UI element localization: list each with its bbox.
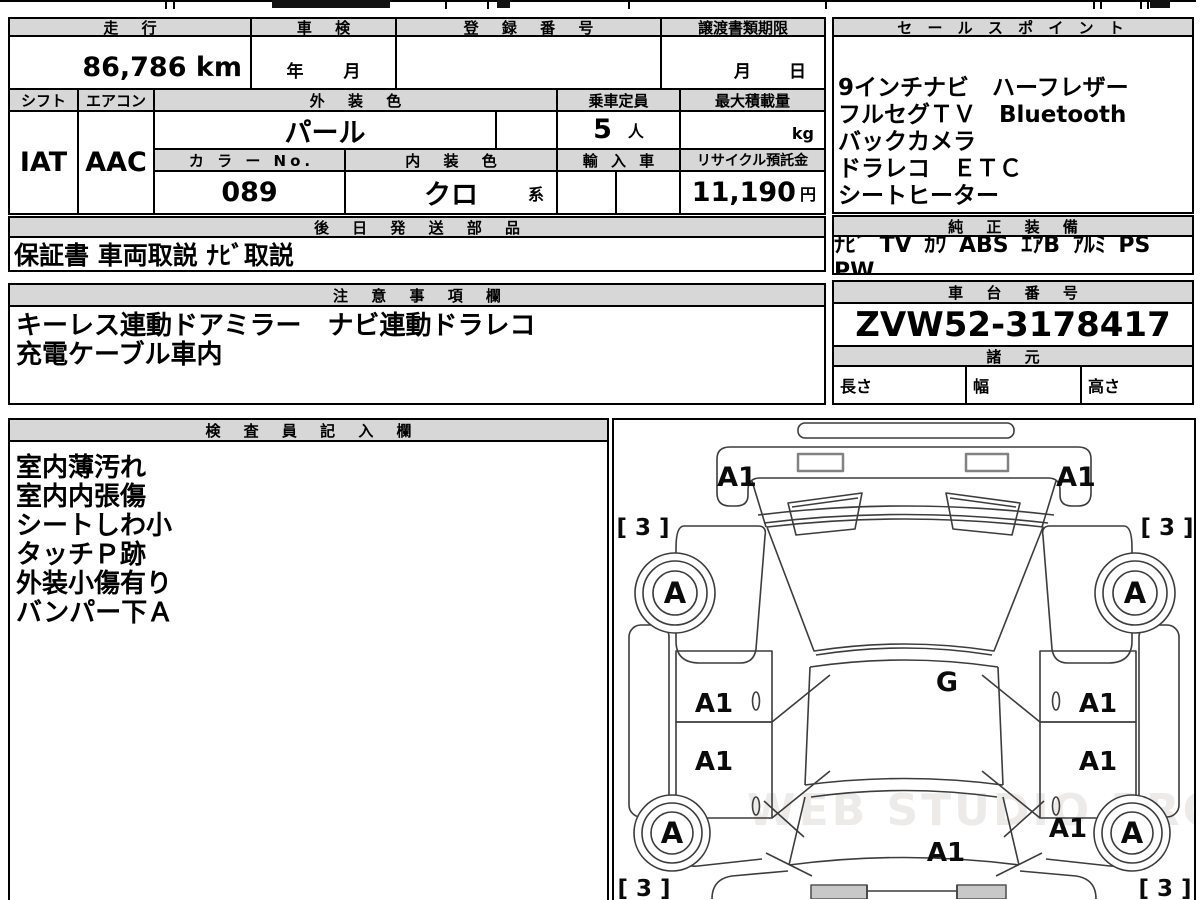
inspector-line: 外装小傷有り <box>16 570 173 599</box>
notes-header: 注 意 事 項 欄 <box>8 283 826 307</box>
chassis-number: ZVW52-3178417 <box>832 302 1194 347</box>
wheel-mark-front-right: A <box>1124 576 1147 610</box>
sill-left <box>629 625 669 817</box>
shift-value: IAT <box>8 110 79 215</box>
equipment-header: 純 正 装 備 <box>832 215 1194 237</box>
sales-point-line: シートヒーター <box>838 183 1129 210</box>
shaken-value: 年 月 <box>250 35 397 90</box>
wheel-mark-front-left: A <box>664 576 687 610</box>
exterior-color-sub <box>495 110 558 150</box>
color-no-value: 089 <box>153 170 346 215</box>
damage-mark-rear-door-right: A1 <box>1079 747 1117 777</box>
auction-sheet: 走 行 車 検 登 録 番 号 譲渡書類期限 86,786 km 年 月 月 日… <box>0 0 1200 900</box>
mileage-value: 86,786 km <box>8 35 252 90</box>
damage-mark-front-door-left: A1 <box>695 689 733 719</box>
damage-mark-rear-door-left: A1 <box>695 747 733 777</box>
damage-mark-front-door-right: A1 <box>1079 689 1117 719</box>
inspector-line: シートしわ小 <box>16 512 173 541</box>
front-fog-right <box>966 454 1008 471</box>
equipment-value: ﾅﾋﾞ TV ｶﾜ ABS ｴｱB ｱﾙﾐ PS PW <box>832 235 1194 275</box>
tire-tread-front-left: [ 3 ] <box>616 515 669 541</box>
inspector-line: タッチＰ跡 <box>16 541 173 570</box>
registration-header: 登 録 番 号 <box>395 17 662 37</box>
windshield-arc <box>816 648 992 655</box>
tire-tread-front-right: [ 3 ] <box>1140 515 1193 541</box>
damage-mark-bumper-right: A1 <box>1056 462 1096 493</box>
door-handle <box>753 692 760 710</box>
door-handle <box>1053 692 1060 710</box>
inspector-line: バンパー下Ａ <box>16 599 173 628</box>
cutoff-text-fragment <box>272 0 390 8</box>
length-cell: 長さ <box>832 365 967 405</box>
glass-mark: G <box>936 667 958 698</box>
damage-diagram-panel: WEB STUDIO PRO <box>612 418 1196 900</box>
notes-content: キーレス連動ドアミラー ナビ連動ドラレコ 充電ケーブル車内 <box>8 305 826 405</box>
transfer-value: 月 日 <box>660 35 826 90</box>
car-diagram: WEB STUDIO PRO <box>614 421 1194 899</box>
aircon-value: AAC <box>77 110 155 215</box>
capacity-header: 乗車定員 <box>556 88 681 112</box>
import-value-b <box>615 170 681 215</box>
notes-line: キーレス連動ドアミラー ナビ連動ドラレコ <box>16 312 535 341</box>
registration-value <box>395 35 662 90</box>
damage-mark-rear-panel: A1 <box>927 838 965 868</box>
wheel-mark-rear-left: A <box>661 816 684 850</box>
tire-tread-rear-left: [ 3 ] <box>617 876 670 899</box>
shaken-month-unit: 月 <box>344 57 361 82</box>
capacity-value: 5 人 <box>556 110 681 150</box>
rear-bumper <box>712 871 1096 899</box>
inspector-content: 室内薄汚れ 室内内張傷 シートしわ小 タッチＰ跡 外装小傷有り バンパー下Ａ <box>8 440 609 900</box>
inspector-line: 室内薄汚れ <box>16 454 173 483</box>
interior-color-header: 内 装 色 <box>344 148 558 172</box>
max-load-header: 最大積載量 <box>679 88 826 112</box>
shaken-year-unit: 年 <box>287 57 304 82</box>
import-header: 輸 入 車 <box>556 148 681 172</box>
license-recess <box>867 885 957 899</box>
exterior-color-header: 外 装 色 <box>153 88 558 112</box>
transfer-month-unit: 月 <box>734 57 751 82</box>
rear-bumper-insert-left <box>811 885 867 899</box>
recycle-header: リサイクル預託金 <box>679 148 826 172</box>
shipping-header: 後 日 発 送 部 品 <box>8 216 826 238</box>
recycle-amount: 11,190 <box>692 177 796 208</box>
width-cell: 幅 <box>965 365 1082 405</box>
specs-header: 諸 元 <box>832 345 1194 367</box>
damage-mark-bumper-left: A1 <box>717 462 757 493</box>
shift-header: シフト <box>8 88 79 112</box>
sales-point-line: ドラレコ ＥＴＣ <box>838 156 1129 183</box>
sales-point-line: フルセグＴＶ Bluetooth <box>838 102 1129 129</box>
height-cell: 高さ <box>1080 365 1194 405</box>
front-fog-left <box>798 454 843 471</box>
front-bumper <box>717 447 1091 506</box>
sales-point-header: セ ー ル ス ポ イ ン ト <box>832 17 1194 37</box>
bonnet <box>767 519 1043 651</box>
color-no-header: カ ラ ー No. <box>153 148 346 172</box>
chassis-header: 車 台 番 号 <box>832 280 1194 304</box>
front-bumper-strip <box>798 423 1014 438</box>
interior-color-value: クロ 系 <box>344 170 558 215</box>
mileage-text: 86,786 km <box>82 52 242 83</box>
shaken-header: 車 検 <box>250 17 397 37</box>
interior-color-suffix: 系 <box>528 181 544 205</box>
max-load-value: kg <box>679 110 826 150</box>
roof-sides <box>805 667 1003 785</box>
tire-tread-rear-right: [ 3 ] <box>1138 876 1191 899</box>
tailgate-arc <box>789 858 1019 866</box>
sales-point-line: 9インチナビ ハーフレザー <box>838 75 1129 102</box>
inspector-line: 室内内張傷 <box>16 483 173 512</box>
transfer-day-unit: 日 <box>789 57 806 82</box>
grille-arc <box>758 506 1054 515</box>
shipping-value: 保証書 車両取説 ﾅﾋﾞ取説 <box>8 236 826 272</box>
sales-point-content: 9インチナビ ハーフレザー フルセグＴＶ Bluetooth バックカメラ ドラ… <box>832 35 1194 214</box>
interior-color-text: クロ <box>424 173 478 212</box>
capacity-unit: 人 <box>628 118 644 145</box>
notes-line: 充電ケーブル車内 <box>16 341 535 370</box>
import-value-a <box>556 170 617 215</box>
recycle-value: 11,190 円 <box>679 170 826 215</box>
exterior-color-value: パール <box>153 110 497 150</box>
aircon-header: エアコン <box>77 88 155 112</box>
max-load-unit: kg <box>792 124 814 143</box>
recycle-unit: 円 <box>800 181 816 208</box>
transfer-deadline-header: 譲渡書類期限 <box>660 17 826 37</box>
capacity-number: 5 <box>593 114 612 145</box>
damage-mark-quarter-right: A1 <box>1049 814 1087 844</box>
mileage-header: 走 行 <box>8 17 252 37</box>
sales-point-line: バックカメラ <box>838 129 1129 156</box>
rear-bumper-insert-right <box>957 885 1006 899</box>
wheel-mark-rear-right: A <box>1121 816 1144 850</box>
inspector-header: 検 査 員 記 入 欄 <box>8 418 609 442</box>
